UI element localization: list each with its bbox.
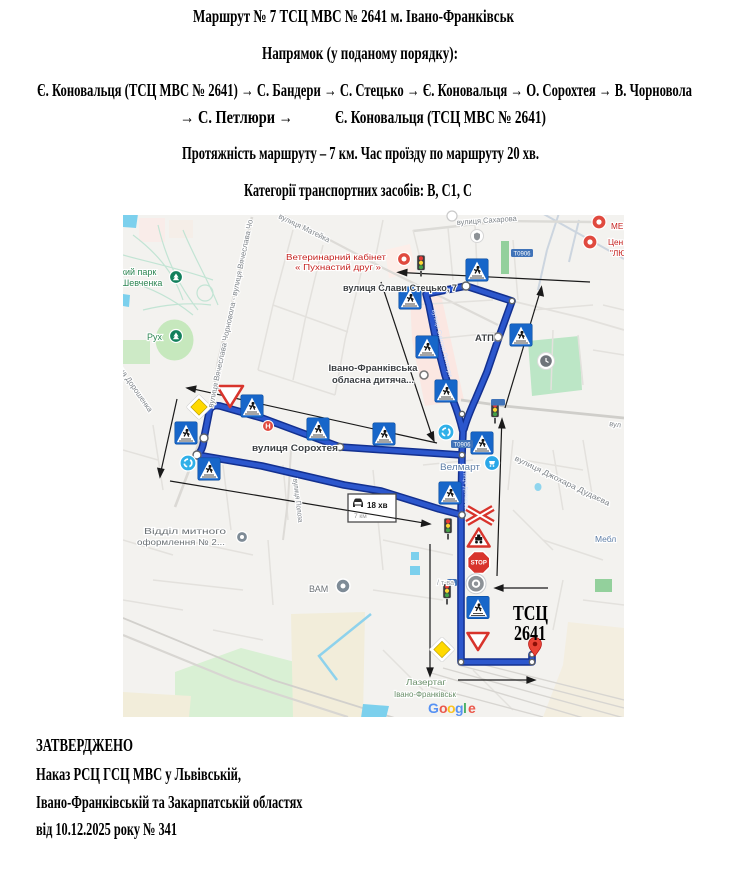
svg-text:вул: вул [609, 419, 622, 430]
svg-text:7 км: 7 км [354, 513, 367, 520]
svg-text:Шевченка: Шевченка [123, 278, 162, 288]
svg-text:Т0906: Т0906 [513, 251, 531, 257]
svg-text:Відділ митного: Відділ митного [144, 526, 226, 536]
svg-text:Н: Н [265, 422, 270, 431]
svg-text:/ т-ва: / т-ва [437, 580, 454, 587]
svg-text:оформлення № 2...: оформлення № 2... [137, 537, 225, 547]
svg-text:2641: 2641 [514, 621, 546, 645]
svg-text:"ЛЮ: "ЛЮ [610, 249, 624, 258]
svg-text:Лазертаг: Лазертаг [406, 677, 446, 687]
svg-text:e: e [468, 700, 476, 716]
svg-text:STOP: STOP [471, 561, 487, 567]
svg-text:кий парк: кий парк [123, 267, 156, 277]
svg-text:ВАМ: ВАМ [309, 584, 328, 594]
svg-text:Ветеринарний кабінет: Ветеринарний кабінет [286, 253, 386, 262]
svg-text:вулиця Слави Стецько, 7: вулиця Слави Стецько, 7 [343, 283, 457, 294]
svg-text:вулиця Сорохтея: вулиця Сорохтея [252, 443, 338, 454]
svg-text:МЕ: МЕ [611, 222, 624, 231]
svg-text:l: l [463, 700, 467, 716]
svg-text:Т0906: Т0906 [453, 442, 471, 448]
svg-text:обласна дитяча...: обласна дитяча... [332, 375, 414, 386]
svg-text:Цен: Цен [608, 238, 623, 247]
svg-text:Рух: Рух [147, 332, 163, 342]
svg-text:Івано-Франківська: Івано-Франківська [329, 363, 419, 374]
svg-text:G: G [428, 700, 439, 716]
svg-text:Велмарт: Велмарт [440, 462, 480, 472]
svg-text:Мебл: Мебл [595, 534, 616, 544]
svg-text:АТП: АТП [475, 333, 494, 344]
svg-text:« Пухнастий друг »: « Пухнастий друг » [295, 263, 382, 272]
svg-text:Івано-Франківськ: Івано-Франківськ [394, 689, 456, 699]
svg-text:18 хв: 18 хв [367, 501, 388, 510]
